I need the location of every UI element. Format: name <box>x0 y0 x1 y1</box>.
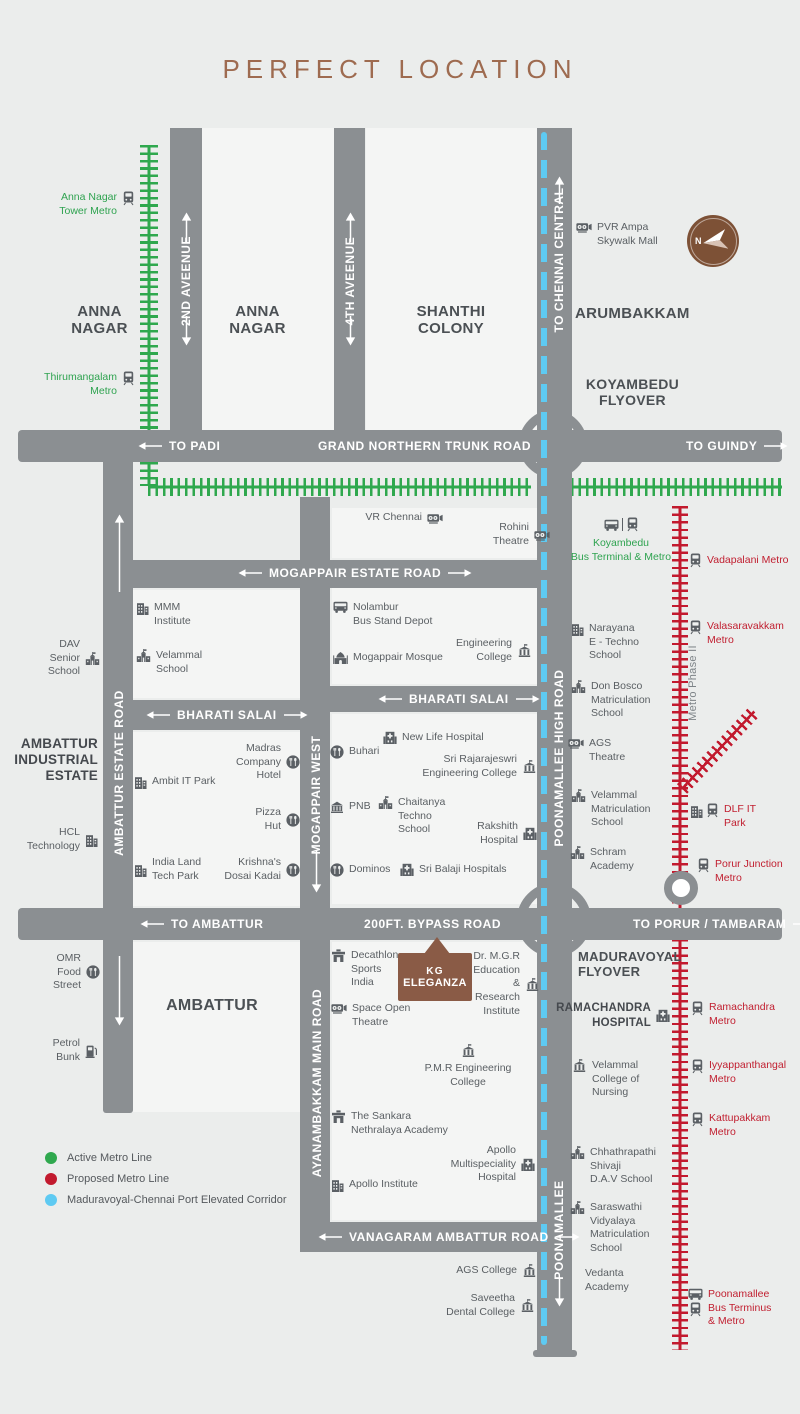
area-label-shanthi-colony: SHANTHICOLONY <box>405 303 497 338</box>
road-label-ayanambakkam-main-road: AYANAMBAKKAM MAIN ROAD <box>310 989 324 1178</box>
landmark-poonamallee-bus-terminus-metro: PoonamalleeBus Terminus& Metro <box>688 1288 788 1329</box>
valasaravakkam-metro-label: ValasaravakkamMetro <box>707 620 784 647</box>
arrow-down-icon <box>554 1279 565 1312</box>
landmark-pmr-engineering-college: P.M.R EngineeringCollege <box>418 1044 518 1089</box>
legend-item-1: Proposed Metro Line <box>45 1173 287 1185</box>
train-icon <box>122 371 135 386</box>
school-icon <box>571 680 586 693</box>
landmark-porur-junction-metro: Porur JunctionMetro <box>697 858 792 885</box>
landmark-chhathrapathi-shivaji-dav-school: ChhathrapathiShivajiD.A.V School <box>570 1146 660 1187</box>
road-label-bharati-salai-east: BHARATI SALAI <box>378 692 540 706</box>
dr-mgr-education-research-institute-label: Dr. M.G.REducation&ResearchInstitute <box>473 950 520 1018</box>
bus-and-train-icon <box>604 517 639 532</box>
bus-icon <box>333 601 348 613</box>
area-label-maduravoyal-flyover: MADURAVOYALFLYOVER <box>578 949 708 979</box>
train-icon <box>691 1112 704 1127</box>
area-label-anna-nagar-west: ANNANAGAR <box>57 303 142 338</box>
landmark-narayana-e-techno-school: NarayanaE - TechnoSchool <box>571 622 651 663</box>
road-label-text: TO PORUR / TAMBARAM <box>633 917 786 931</box>
road-label-ambattur-estate-road: AMBATTUR ESTATE ROAD <box>112 690 126 856</box>
landmark-krishnas-dosai-kadai: Krishna'sDosai Kadai <box>205 856 300 883</box>
petrol-bunk-label: PetrolBunk <box>53 1037 80 1064</box>
landmark-velammal-matriculation-school: VelammalMatriculationSchool <box>571 789 656 830</box>
road-label-text: MOGAPPAIR ESTATE ROAD <box>269 566 441 580</box>
bus-and-train-icon <box>688 1288 703 1317</box>
legend-label: Maduravoyal-Chennai Port Elevated Corrid… <box>67 1194 287 1206</box>
apollo-multispeciality-hospital-label: ApolloMultispecialityHospital <box>451 1144 516 1185</box>
building-icon <box>85 833 98 847</box>
train-icon <box>689 553 702 568</box>
landmark-kattupakkam-metro: KattupakkamMetro <box>691 1112 786 1139</box>
sri-rajarajeswri-engineering-college-label: Sri RajarajeswriEngineering College <box>422 753 517 780</box>
vadapalani-metro-label: Vadapalani Metro <box>707 554 789 568</box>
area-label-anna-nagar: ANNANAGAR <box>215 303 300 338</box>
rohini-theatre-label: RohiniTheatre <box>493 521 529 548</box>
road-label-to-porur-tambaram: TO PORUR / TAMBARAM <box>633 917 800 931</box>
project-name-line1: KG <box>426 966 443 977</box>
hcl-technology-label: HCLTechnology <box>27 826 80 853</box>
india-land-tech-park-label: India LandTech Park <box>152 856 201 883</box>
road-label-2nd-avenue: 2ND AVEENUE <box>179 236 193 326</box>
omr-food-street-label: OMRFoodStreet <box>53 952 81 993</box>
landmark-ramachandra-metro: RamachandraMetro <box>691 1001 786 1028</box>
arrow-up-icon <box>554 176 565 209</box>
kattupakkam-metro-label: KattupakkamMetro <box>709 1112 770 1139</box>
arrow-left-icon <box>140 919 165 929</box>
landmark-iyyappanthangal-metro: IyyappanthangalMetro <box>691 1059 796 1086</box>
food-icon <box>86 965 100 979</box>
hospital-icon <box>656 1009 670 1022</box>
road-label-poonamallee: POONAMALLEE <box>552 1180 566 1279</box>
legend: Active Metro LineProposed Metro LineMadu… <box>45 1152 287 1215</box>
store-icon <box>331 949 346 962</box>
landmark-saveetha-dental-college: SaveethaDental College <box>430 1292 535 1319</box>
ramachandra-metro-label: RamachandraMetro <box>709 1001 775 1028</box>
narayana-e-techno-school-label: NarayanaE - TechnoSchool <box>589 622 639 663</box>
arrow-right-icon <box>283 710 308 720</box>
active-metro-line-east <box>571 478 782 496</box>
landmark-velammal-school: VelammalSchool <box>136 649 211 676</box>
landmark-rohini-theatre: RohiniTheatre <box>460 521 550 548</box>
rakshith-hospital-label: RakshithHospital <box>477 820 518 847</box>
ramachandra-hospital-label: RAMACHANDRAHOSPITAL <box>556 1001 651 1031</box>
sri-balaji-hospitals-label: Sri Balaji Hospitals <box>419 863 507 877</box>
block-ambattur <box>133 942 300 1112</box>
landmark-apollo-multispeciality-hospital: ApolloMultispecialityHospital <box>448 1144 535 1185</box>
road-label-to-chennai-central: TO CHENNAI CENTRAL <box>552 187 566 332</box>
dav-senior-school-label: DAVSeniorSchool <box>48 638 80 679</box>
mosque-icon <box>333 652 348 664</box>
ags-theatre-label: AGSTheatre <box>589 737 625 764</box>
road-label-text: TO PADI <box>169 439 220 453</box>
road-label-text: BHARATI SALAI <box>409 692 509 706</box>
building-and-train-icon <box>690 803 719 818</box>
saveetha-dental-college-label: SaveethaDental College <box>446 1292 515 1319</box>
compass: N <box>687 215 739 267</box>
pnb-label: PNB <box>349 800 371 814</box>
landmark-rakshith-hospital: RakshithHospital <box>448 820 537 847</box>
active-metro-line-west <box>148 478 531 496</box>
food-icon <box>330 745 344 759</box>
arrow-up-icon <box>114 514 125 597</box>
landmark-india-land-tech-park: India LandTech Park <box>134 856 214 883</box>
train-icon <box>691 1001 704 1016</box>
arrow-left-icon <box>318 1232 343 1242</box>
landmark-ags-theatre: AGSTheatre <box>568 737 633 764</box>
landmark-apollo-institute: Apollo Institute <box>331 1178 436 1192</box>
landmark-petrol-bunk: PetrolBunk <box>26 1037 98 1064</box>
landmark-don-bosco-matriculation-school: Don BoscoMatriculationSchool <box>571 680 656 721</box>
road-label-bharati-salai-west: BHARATI SALAI <box>146 708 308 722</box>
school-icon <box>570 846 585 859</box>
building-icon <box>136 601 149 615</box>
space-open-theatre-label: Space OpenTheatre <box>352 1002 410 1029</box>
road-label-text: TO GUINDY <box>686 439 757 453</box>
schram-academy-label: SchramAcademy <box>590 846 634 873</box>
hospital-icon <box>523 827 537 840</box>
road-label-grand-northern-trunk-road: GRAND NORTHERN TRUNK ROAD <box>318 439 531 453</box>
landmark-velammal-college-of-nursing: VelammalCollege ofNursing <box>572 1059 652 1100</box>
landmark-valasaravakkam-metro: ValasaravakkamMetro <box>689 620 789 647</box>
sankara-nethralaya-academy-label: The SankaraNethralaya Academy <box>351 1110 448 1137</box>
thirumangalam-metro-label: ThirumangalamMetro <box>44 371 117 398</box>
landmark-dominos: Dominos <box>330 863 400 877</box>
landmark-vadapalani-metro: Vadapalani Metro <box>689 553 789 568</box>
landmark-vr-chennai: VR Chennai <box>363 511 443 525</box>
don-bosco-matriculation-school-label: Don BoscoMatriculationSchool <box>591 680 651 721</box>
cinema-icon <box>568 737 584 749</box>
hospital-icon <box>521 1158 535 1171</box>
landmark-dr-mgr-education-research-institute: Dr. M.G.REducation&ResearchInstitute <box>455 950 540 1018</box>
ags-college-label: AGS College <box>456 1264 517 1278</box>
landmark-pvr-ampa-skywalk-mall: PVR AmpaSkywalk Mall <box>576 221 676 248</box>
legend-dot-icon <box>45 1173 57 1185</box>
landmark-madras-company-hotel: MadrasCompanyHotel <box>210 742 300 783</box>
landmark-koyambedu-bus-terminal-metro: KoyambeduBus Terminal & Metro <box>565 517 677 564</box>
arrow-right-icon <box>763 441 788 451</box>
legend-dot-icon <box>45 1194 57 1206</box>
arrow-up-icon <box>345 212 356 247</box>
hospital-icon <box>400 863 414 876</box>
landmark-dav-senior-school: DAVSeniorSchool <box>28 638 100 679</box>
arrow-down-icon <box>114 956 125 1031</box>
petrol-icon <box>85 1044 98 1058</box>
arrow-left-icon <box>146 710 171 720</box>
landmark-space-open-theatre: Space OpenTheatre <box>331 1002 421 1029</box>
college-icon <box>461 1044 476 1057</box>
landmark-anna-nagar-tower-metro: Anna NagarTower Metro <box>40 191 135 218</box>
landmark-decathlon-sports-india: DecathlonSportsIndia <box>331 949 411 990</box>
pizza-hut-label: PizzaHut <box>255 806 281 833</box>
landmark-chaitanya-techno-school: ChaitanyaTechnoSchool <box>378 796 458 837</box>
mogappair-mosque-label: Mogappair Mosque <box>353 651 443 665</box>
pvr-ampa-skywalk-mall-label: PVR AmpaSkywalk Mall <box>597 221 658 248</box>
landmark-dlf-it-park: DLF ITPark <box>690 803 752 830</box>
project-marker-pointer <box>424 937 450 954</box>
hospital-icon <box>383 731 397 744</box>
compass-needle-icon <box>702 227 728 255</box>
arrow-down-icon <box>181 316 192 351</box>
dominos-label: Dominos <box>349 863 390 877</box>
food-icon <box>286 813 300 827</box>
landmark-schram-academy: SchramAcademy <box>570 846 640 873</box>
new-life-hospital-label: New Life Hospital <box>402 731 484 745</box>
landmark-saraswathi-vidyalaya-matriculation-school: SaraswathiVidyalayaMatriculationSchool <box>570 1201 660 1256</box>
legend-item-0: Active Metro Line <box>45 1152 287 1164</box>
landmark-pizza-hut: PizzaHut <box>225 806 300 833</box>
arrow-right-icon <box>447 568 472 578</box>
legend-item-2: Maduravoyal-Chennai Port Elevated Corrid… <box>45 1194 287 1206</box>
velammal-school-label: VelammalSchool <box>156 649 202 676</box>
landmark-mogappair-mosque: Mogappair Mosque <box>333 651 445 665</box>
landmark-omr-food-street: OMRFoodStreet <box>30 952 100 993</box>
vr-chennai-label: VR Chennai <box>365 511 422 525</box>
dlf-it-park-label: DLF ITPark <box>724 803 756 830</box>
arrow-down-icon <box>345 316 356 351</box>
road-label-text: VANAGARAM AMBATTUR ROAD <box>349 1230 549 1244</box>
food-icon <box>286 755 300 769</box>
chhathrapathi-shivaji-dav-school-label: ChhathrapathiShivajiD.A.V School <box>590 1146 656 1187</box>
road-label-vanagaram-ambattur-road: VANAGARAM AMBATTUR ROAD <box>318 1230 580 1244</box>
bank-icon <box>330 801 344 813</box>
arrow-right-icon <box>792 919 800 929</box>
college-icon <box>520 1299 535 1312</box>
iyyappanthangal-metro-label: IyyappanthangalMetro <box>709 1059 786 1086</box>
location-map: PERFECT LOCATION KG ELEGANZA N Active Me… <box>0 0 800 1414</box>
road-label-text: BHARATI SALAI <box>177 708 277 722</box>
saraswathi-vidyalaya-matriculation-school-label: SaraswathiVidyalayaMatriculationSchool <box>590 1201 650 1256</box>
road-label-to-ambattur: TO AMBATTUR <box>140 917 263 931</box>
area-label-ambattur: AMBATTUR <box>162 997 262 1016</box>
legend-label: Proposed Metro Line <box>67 1173 169 1185</box>
school-icon <box>570 1146 585 1159</box>
arrow-right-icon <box>515 694 540 704</box>
velammal-matriculation-school-label: VelammalMatriculationSchool <box>591 789 651 830</box>
road-label-mogappair-west: MOGAPPAIR WEST <box>309 736 323 855</box>
ambattur-industrial-estate-label: AMBATTURINDUSTRIALESTATE <box>14 736 98 785</box>
building-icon <box>134 775 147 789</box>
area-label-arumbakkam: ARUMBAKKAM <box>575 305 705 322</box>
block-shanthi-colony <box>366 128 537 430</box>
pmr-engineering-college-label: P.M.R EngineeringCollege <box>425 1062 512 1089</box>
building-icon <box>134 863 147 877</box>
road-label-text: 200FT. BYPASS ROAD <box>364 917 501 931</box>
school-icon <box>570 1201 585 1214</box>
landmark-mmm-institute: MMMInstitute <box>136 601 211 628</box>
road-label-to-padi: TO PADI <box>138 439 220 453</box>
apollo-institute-label: Apollo Institute <box>349 1178 418 1192</box>
cinema-icon <box>427 512 443 524</box>
landmark-sri-rajarajeswri-engineering-college: Sri RajarajeswriEngineering College <box>420 753 537 780</box>
landmark-hcl-technology: HCLTechnology <box>18 826 98 853</box>
road-label-poonamallee-high-road: POONAMALLEE HIGH ROAD <box>552 670 566 847</box>
train-icon <box>689 620 702 635</box>
legend-dot-icon <box>45 1152 57 1164</box>
road-poonamallee-cap <box>533 1350 577 1357</box>
landmark-pnb: PNB <box>330 800 385 814</box>
food-icon <box>330 863 344 877</box>
road-label-text: TO AMBATTUR <box>171 917 263 931</box>
area-label-koyambedu-flyover: KOYAMBEDUFLYOVER <box>580 376 685 408</box>
decathlon-sports-india-label: DecathlonSportsIndia <box>351 949 398 990</box>
landmark-vedanta-academy: VedantaAcademy <box>585 1267 660 1294</box>
building-icon <box>331 1178 344 1192</box>
mmm-institute-label: MMMInstitute <box>154 601 191 628</box>
landmark-buhari: Buhari <box>330 745 390 759</box>
madras-company-hotel-label: MadrasCompanyHotel <box>236 742 281 783</box>
building-icon <box>571 622 584 636</box>
krishnas-dosai-kadai-label: Krishna'sDosai Kadai <box>224 856 281 883</box>
engineering-college-label: EngineeringCollege <box>456 637 512 664</box>
arrow-down-icon <box>311 851 322 898</box>
nolambur-bus-stand-depot-label: NolamburBus Stand Depot <box>353 601 432 628</box>
road-label-text: GRAND NORTHERN TRUNK ROAD <box>318 439 531 453</box>
school-icon <box>571 789 586 802</box>
train-icon <box>697 858 710 873</box>
chaitanya-techno-school-label: ChaitanyaTechnoSchool <box>398 796 445 837</box>
legend-label: Active Metro Line <box>67 1152 152 1164</box>
velammal-college-of-nursing-label: VelammalCollege ofNursing <box>592 1059 639 1100</box>
school-icon <box>136 649 151 662</box>
road-label-mogappair-estate-road: MOGAPPAIR ESTATE ROAD <box>238 566 472 580</box>
landmark-ramachandra-hospital: RAMACHANDRAHOSPITAL <box>558 1001 670 1031</box>
school-icon <box>378 796 393 809</box>
road-label-4th-avenue: 4TH AVEENUE <box>343 237 357 326</box>
landmark-engineering-college: EngineeringCollege <box>435 637 532 664</box>
vedanta-academy-label: VedantaAcademy <box>585 1267 629 1294</box>
cinema-icon <box>576 221 592 233</box>
porur-junction-circle <box>664 871 698 905</box>
train-icon <box>122 191 135 206</box>
page-title: PERFECT LOCATION <box>0 54 800 85</box>
elevated-corridor-line <box>541 132 547 1345</box>
college-icon <box>572 1059 587 1072</box>
landmark-ags-college: AGS College <box>440 1264 537 1278</box>
landmark-nolambur-bus-stand-depot: NolamburBus Stand Depot <box>333 601 433 628</box>
road-label-to-guindy: TO GUINDY <box>686 439 788 453</box>
arrow-up-icon <box>181 212 192 247</box>
college-icon <box>525 978 540 991</box>
arrow-left-icon <box>238 568 263 578</box>
store-icon <box>331 1110 346 1123</box>
food-icon <box>286 863 300 877</box>
road-label-metro-phase-2: Metro Phase II <box>687 645 699 721</box>
landmark-sankara-nethralaya-academy: The SankaraNethralaya Academy <box>331 1110 446 1137</box>
landmark-thirumangalam-metro: ThirumangalamMetro <box>25 371 135 398</box>
ambit-it-park-label: Ambit IT Park <box>152 775 215 789</box>
cinema-icon <box>534 529 550 541</box>
cinema-icon <box>331 1002 347 1014</box>
arrow-left-icon <box>138 441 163 451</box>
train-icon <box>691 1059 704 1074</box>
road-label-200ft-bypass-road: 200FT. BYPASS ROAD <box>364 917 501 931</box>
college-icon <box>517 644 532 657</box>
arrow-left-icon <box>378 694 403 704</box>
poonamallee-bus-terminus-metro-label: PoonamalleeBus Terminus& Metro <box>708 1288 771 1329</box>
compass-north-label: N <box>695 236 702 246</box>
buhari-label: Buhari <box>349 745 379 759</box>
landmark-sri-balaji-hospitals: Sri Balaji Hospitals <box>400 863 520 877</box>
landmark-ambattur-industrial-estate: AMBATTURINDUSTRIALESTATE <box>8 736 98 785</box>
anna-nagar-tower-metro-label: Anna NagarTower Metro <box>59 191 117 218</box>
koyambedu-bus-terminal-metro-label: KoyambeduBus Terminal & Metro <box>571 537 671 564</box>
landmark-new-life-hospital: New Life Hospital <box>383 731 498 745</box>
active-metro-line-vertical <box>140 145 158 433</box>
college-icon <box>522 760 537 773</box>
college-icon <box>522 1264 537 1277</box>
porur-junction-metro-label: Porur JunctionMetro <box>715 858 783 885</box>
school-icon <box>85 652 100 665</box>
block-anna-nagar <box>202 128 334 430</box>
